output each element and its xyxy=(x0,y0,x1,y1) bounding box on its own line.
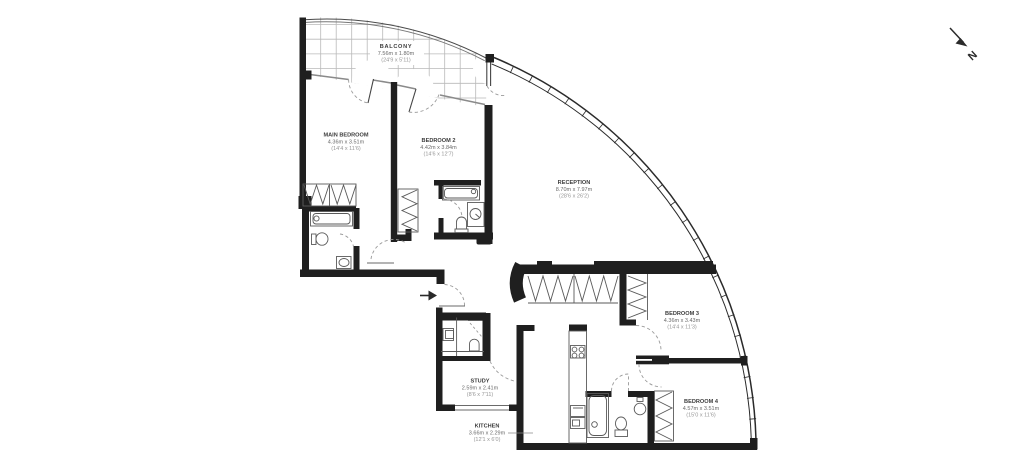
svg-text:(15'0 x 11'6): (15'0 x 11'6) xyxy=(686,413,716,419)
svg-text:4.36m x 3.43m: 4.36m x 3.43m xyxy=(664,318,701,324)
svg-text:BEDROOM 4: BEDROOM 4 xyxy=(684,399,719,405)
svg-text:MAIN BEDROOM: MAIN BEDROOM xyxy=(323,133,368,139)
svg-text:(14'4 x 11'6): (14'4 x 11'6) xyxy=(331,146,361,152)
svg-text:(12'1 x 6'0): (12'1 x 6'0) xyxy=(474,437,501,443)
svg-text:8.70m x 7.97m: 8.70m x 7.97m xyxy=(556,187,593,193)
svg-text:(8'6 x 7'11): (8'6 x 7'11) xyxy=(467,392,494,398)
svg-text:2.59m x 2.41m: 2.59m x 2.41m xyxy=(462,386,499,392)
svg-text:(14'4 x 11'3): (14'4 x 11'3) xyxy=(667,325,697,331)
svg-text:4.42m x 3.84m: 4.42m x 3.84m xyxy=(420,145,457,151)
svg-text:4.57m x 3.51m: 4.57m x 3.51m xyxy=(683,406,720,412)
svg-text:STUDY: STUDY xyxy=(471,379,490,385)
svg-text:RECEPTION: RECEPTION xyxy=(558,180,591,186)
svg-text:BEDROOM 3: BEDROOM 3 xyxy=(665,311,699,317)
svg-text:KITCHEN: KITCHEN xyxy=(475,424,500,430)
svg-text:(28'6 x 26'2): (28'6 x 26'2) xyxy=(559,194,589,200)
svg-text:BALCONY: BALCONY xyxy=(380,44,413,50)
svg-text:7.56m x 1.80m: 7.56m x 1.80m xyxy=(378,51,415,57)
svg-text:3.66m x 2.29m: 3.66m x 2.29m xyxy=(469,431,506,437)
svg-text:(14'6 x 12'7): (14'6 x 12'7) xyxy=(424,152,454,158)
svg-text:(24'9 x 5'11): (24'9 x 5'11) xyxy=(381,58,411,64)
svg-text:BEDROOM 2: BEDROOM 2 xyxy=(422,138,456,144)
svg-text:4.36m x 3.51m: 4.36m x 3.51m xyxy=(328,140,365,146)
